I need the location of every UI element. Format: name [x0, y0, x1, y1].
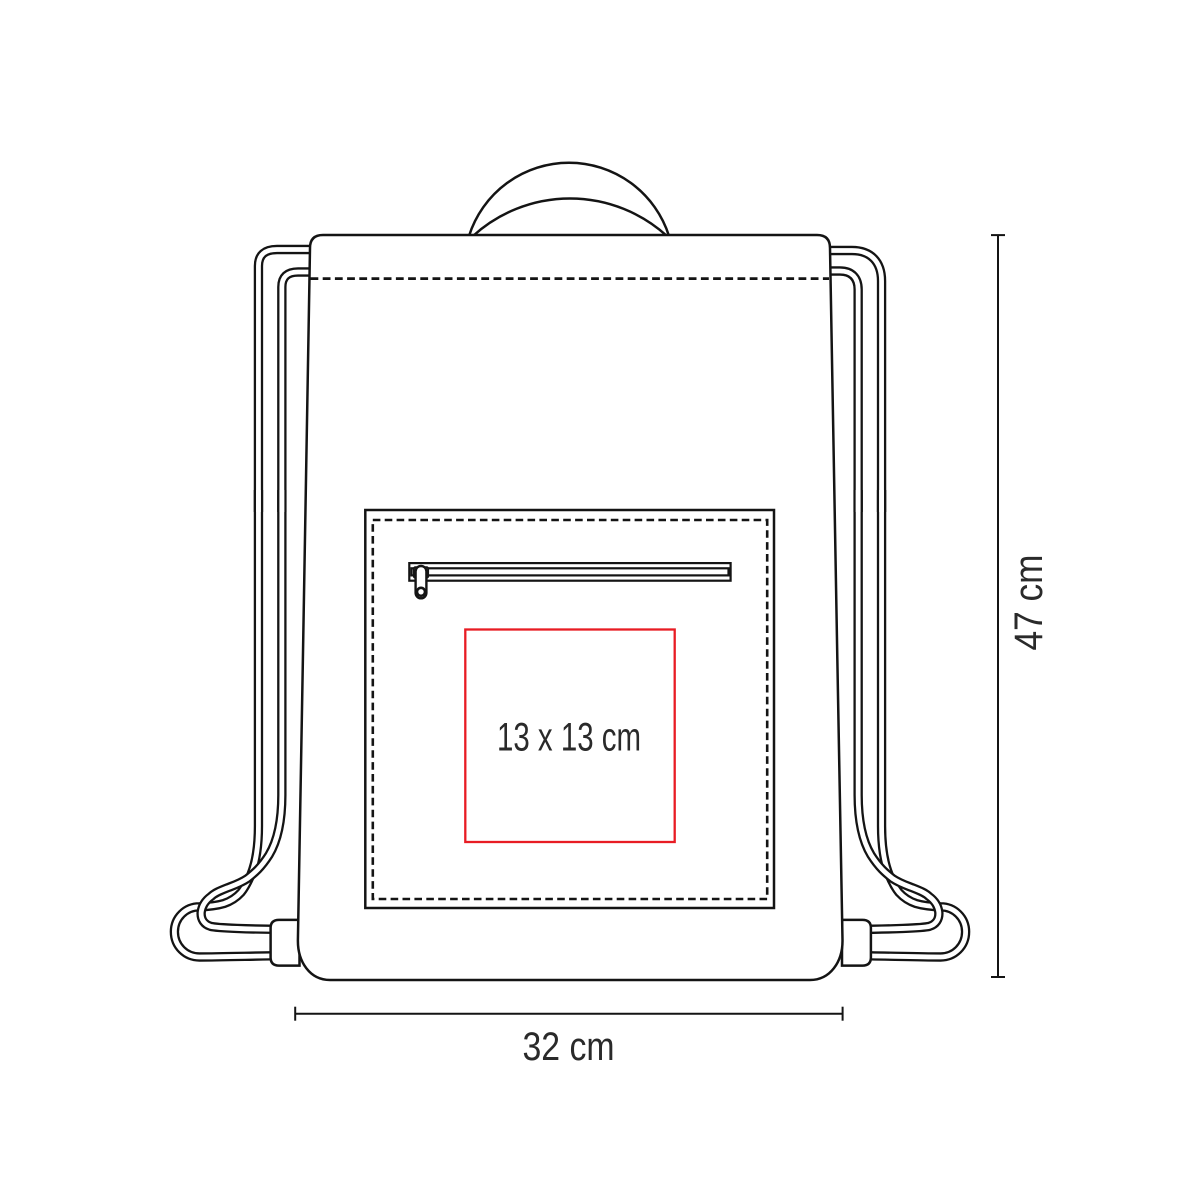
- svg-text:32 cm: 32 cm: [523, 1025, 615, 1069]
- svg-text:47 cm: 47 cm: [1007, 555, 1051, 651]
- svg-text:13 x 13 cm: 13 x 13 cm: [497, 716, 641, 760]
